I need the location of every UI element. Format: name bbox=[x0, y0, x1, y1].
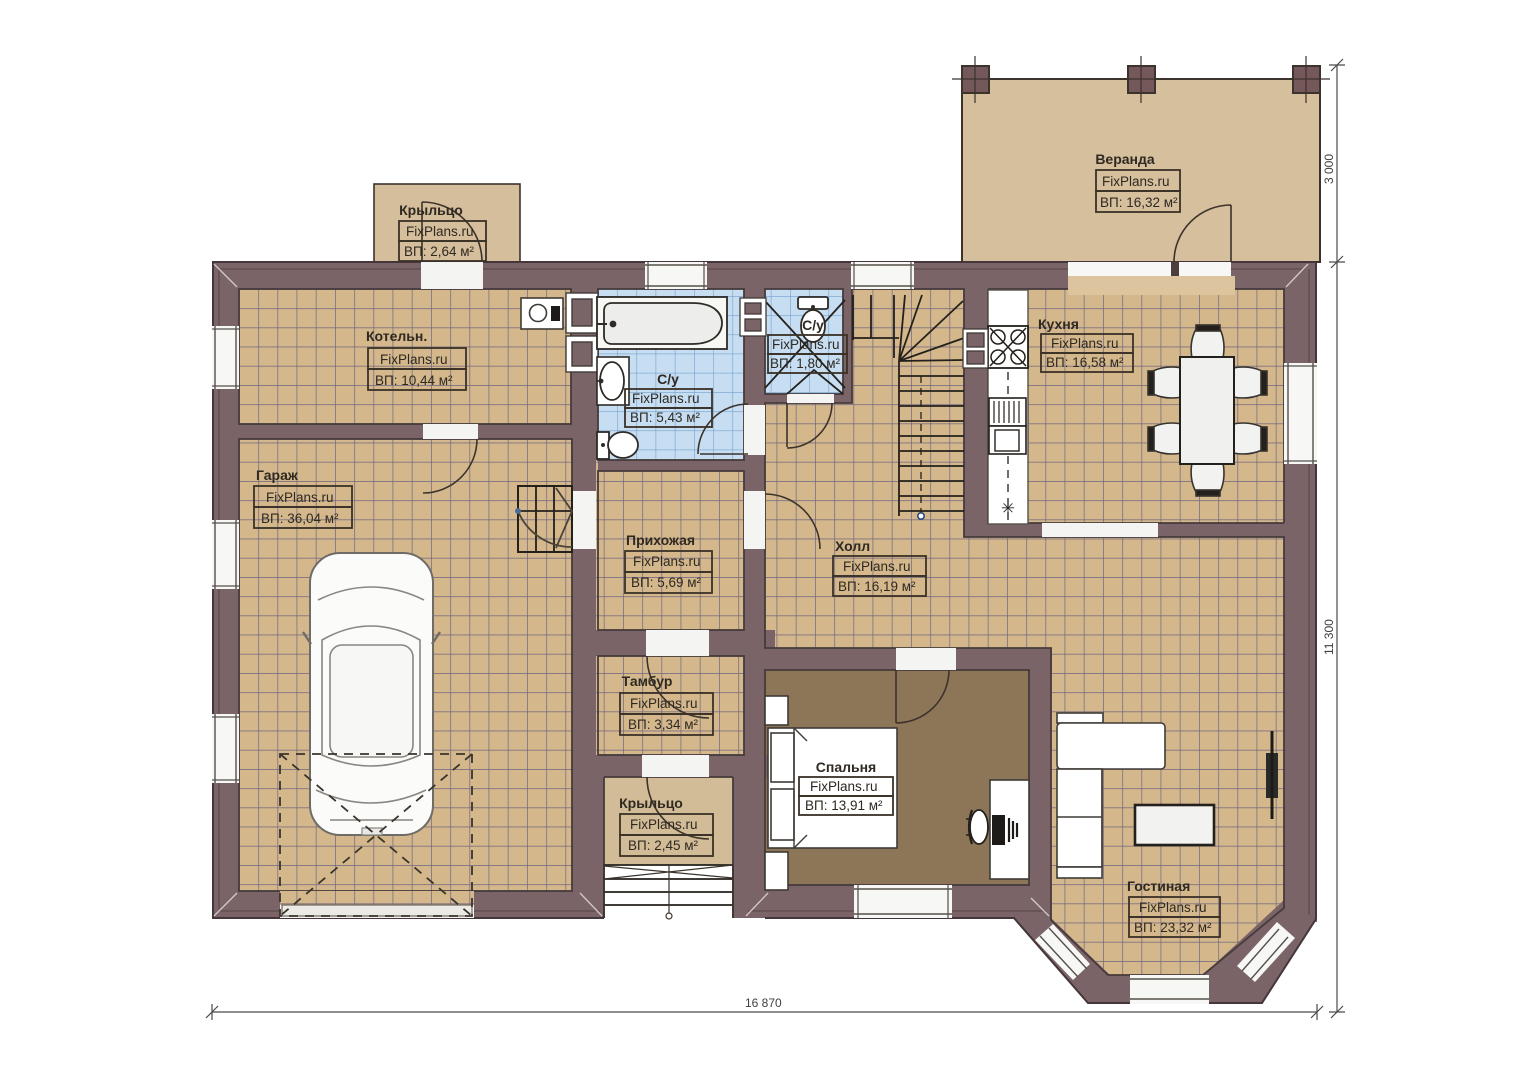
svg-text:FixPlans.ru: FixPlans.ru bbox=[406, 224, 474, 239]
svg-text:FixPlans.ru: FixPlans.ru bbox=[380, 352, 448, 367]
svg-text:FixPlans.ru: FixPlans.ru bbox=[1102, 174, 1170, 189]
svg-text:FixPlans.ru: FixPlans.ru bbox=[810, 779, 878, 794]
svg-text:FixPlans.ru: FixPlans.ru bbox=[266, 490, 334, 505]
svg-text:Гараж: Гараж bbox=[256, 467, 299, 483]
svg-text:FixPlans.ru: FixPlans.ru bbox=[1139, 900, 1207, 915]
svg-text:С/у: С/у bbox=[802, 317, 824, 333]
svg-text:FixPlans.ru: FixPlans.ru bbox=[843, 559, 911, 574]
svg-text:ВП: 10,44 м²: ВП: 10,44 м² bbox=[375, 373, 453, 388]
svg-text:Крыльцо: Крыльцо bbox=[399, 202, 463, 218]
svg-text:Котельн.: Котельн. bbox=[366, 328, 427, 344]
svg-text:ВП: 16,19 м²: ВП: 16,19 м² bbox=[838, 579, 916, 594]
svg-text:FixPlans.ru: FixPlans.ru bbox=[632, 391, 700, 406]
svg-text:FixPlans.ru: FixPlans.ru bbox=[1051, 336, 1119, 351]
svg-text:3 000: 3 000 bbox=[1322, 154, 1336, 184]
svg-text:Веранда: Веранда bbox=[1095, 151, 1155, 167]
svg-text:ВП: 5,43 м²: ВП: 5,43 м² bbox=[630, 410, 701, 425]
svg-text:ВП: 3,34 м²: ВП: 3,34 м² bbox=[628, 717, 699, 732]
svg-text:ВП: 23,32 м²: ВП: 23,32 м² bbox=[1134, 920, 1212, 935]
svg-text:Холл: Холл bbox=[835, 538, 870, 554]
svg-text:✳: ✳ bbox=[1001, 499, 1015, 518]
svg-text:Тамбур: Тамбур bbox=[622, 673, 673, 689]
svg-text:Гостиная: Гостиная bbox=[1127, 878, 1190, 894]
svg-text:ВП: 2,64 м²: ВП: 2,64 м² bbox=[404, 244, 475, 259]
svg-text:Крыльцо: Крыльцо bbox=[619, 795, 683, 811]
svg-text:FixPlans.ru: FixPlans.ru bbox=[633, 554, 701, 569]
svg-text:ВП: 13,91 м²: ВП: 13,91 м² bbox=[805, 798, 883, 813]
svg-text:Прихожая: Прихожая bbox=[626, 532, 695, 548]
svg-text:Кухня: Кухня bbox=[1038, 316, 1079, 332]
svg-text:ВП: 16,32 м²: ВП: 16,32 м² bbox=[1100, 195, 1178, 210]
svg-text:ВП: 2,45 м²: ВП: 2,45 м² bbox=[628, 838, 699, 853]
svg-text:FixPlans.ru: FixPlans.ru bbox=[630, 696, 698, 711]
svg-text:FixPlans.ru: FixPlans.ru bbox=[772, 337, 840, 352]
svg-text:11 300: 11 300 bbox=[1322, 619, 1336, 655]
svg-text:ВП: 5,69 м²: ВП: 5,69 м² bbox=[631, 575, 702, 590]
svg-text:FixPlans.ru: FixPlans.ru bbox=[630, 817, 698, 832]
svg-text:16 870: 16 870 bbox=[745, 996, 782, 1010]
svg-text:ВП: 1,80 м²: ВП: 1,80 м² bbox=[770, 356, 841, 371]
svg-text:ВП: 36,04 м²: ВП: 36,04 м² bbox=[261, 511, 339, 526]
svg-text:С/у: С/у bbox=[657, 371, 679, 387]
svg-text:Спальня: Спальня bbox=[816, 759, 876, 775]
svg-text:ВП: 16,58 м²: ВП: 16,58 м² bbox=[1046, 355, 1124, 370]
